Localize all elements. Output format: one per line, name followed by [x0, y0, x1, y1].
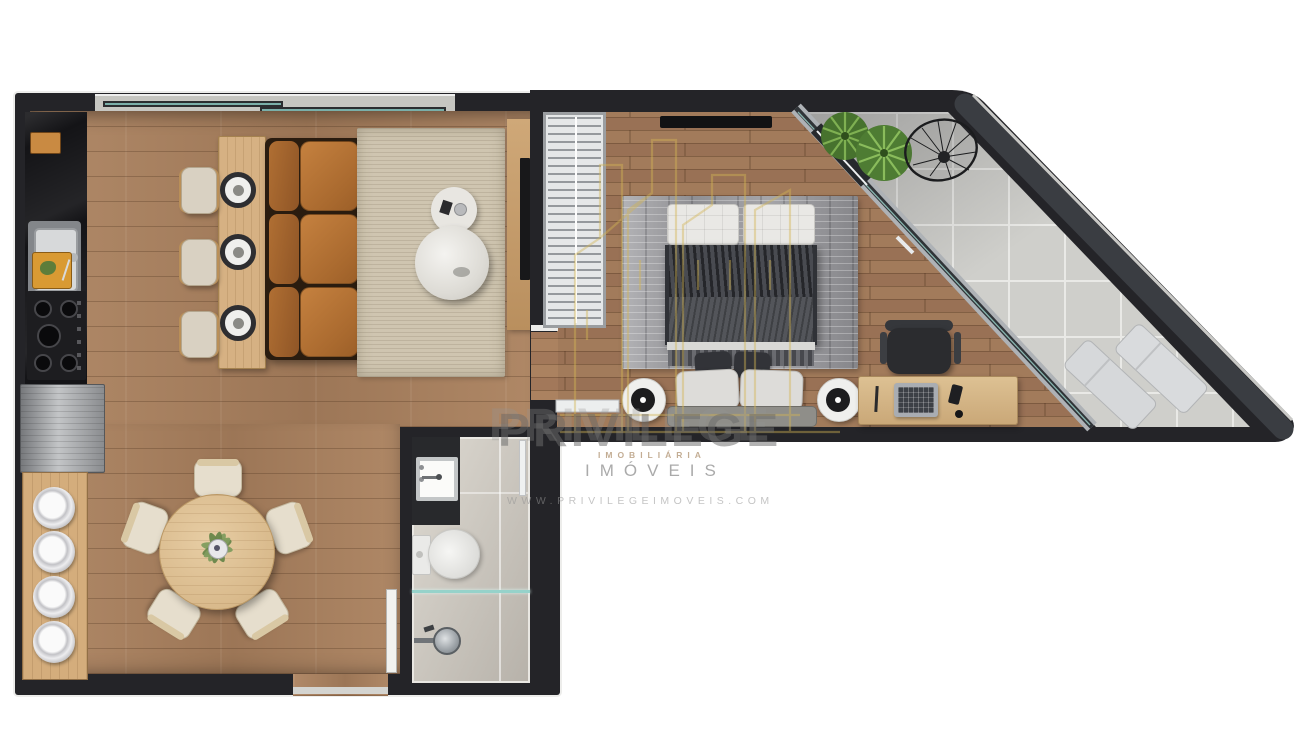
sofa-seat-cushion [300, 287, 359, 357]
place-setting [220, 305, 256, 341]
sofa-back-cushion [269, 214, 299, 284]
table-decor [454, 203, 467, 216]
sofa-seat-cushion [300, 141, 359, 211]
watermark-logo-skyline [540, 110, 880, 440]
watermark-brand: PRIVILEGE [498, 407, 781, 453]
burner [34, 300, 52, 318]
place-setting [220, 234, 256, 270]
plate-stack [33, 621, 75, 663]
toilet-icon [428, 529, 480, 579]
bar-stool [181, 311, 217, 358]
burner [37, 324, 61, 348]
sofa-seat-cushion [300, 214, 359, 284]
place-setting [220, 172, 256, 208]
coffee-table [415, 226, 489, 300]
watermark-subtitle: IMÓVEIS [585, 461, 726, 481]
table-decor [439, 200, 453, 215]
dining-chair [194, 459, 242, 497]
table-decor [453, 267, 470, 277]
plate-stack [33, 487, 75, 529]
window-glass-line [105, 103, 281, 105]
desk-icon [858, 376, 1018, 425]
leather-sofa-icon [265, 138, 363, 360]
office-chair-icon [887, 328, 951, 374]
burner [60, 354, 78, 372]
knife-icon [62, 259, 71, 281]
floor-plan-canvas: PRIVILEGE IMOBILIÁRIA IMÓVEIS WWW.PRIVIL… [0, 0, 1300, 754]
watermark-website: WWW.PRIVILEGEIMOVEIS.COM [507, 495, 774, 507]
tap-knob [419, 465, 424, 470]
bar-stool [181, 167, 217, 214]
shower-glass-partition [412, 590, 530, 593]
bathroom-sink-icon [416, 457, 458, 501]
kitchen-small-board [30, 132, 61, 154]
tv-icon [520, 158, 530, 280]
chair-armrest [880, 332, 887, 364]
window-sash [103, 101, 283, 107]
laptop-keyboard [898, 387, 934, 413]
bar-stool [181, 239, 217, 286]
plate-stack [33, 576, 75, 618]
bathroom-door-leaf [386, 589, 397, 673]
cooktop-icon [27, 291, 86, 380]
burner [60, 300, 78, 318]
shower-head-icon [433, 627, 461, 655]
entrance-threshold [293, 687, 388, 694]
burner [34, 354, 52, 372]
sofa-back-cushion [269, 141, 299, 211]
bathroom-tile-line [499, 439, 501, 681]
vegetables [40, 261, 56, 275]
plate-stack [33, 531, 75, 573]
centerpiece-vase [208, 539, 228, 559]
mouse-icon [955, 410, 963, 418]
stainless-appliance [20, 384, 105, 473]
tap-spout-tip [436, 474, 442, 480]
crockery-sideboard [22, 472, 88, 680]
dining-table-icon [159, 494, 275, 610]
laptop-icon [894, 383, 938, 417]
watermark-tagline: IMOBILIÁRIA [598, 450, 706, 460]
shower-arm [414, 638, 435, 643]
chair-armrest [954, 332, 961, 364]
flush-button [416, 551, 423, 558]
stove-knobs [77, 301, 81, 371]
cutting-board [32, 252, 72, 289]
sofa-back-cushion [269, 287, 299, 357]
